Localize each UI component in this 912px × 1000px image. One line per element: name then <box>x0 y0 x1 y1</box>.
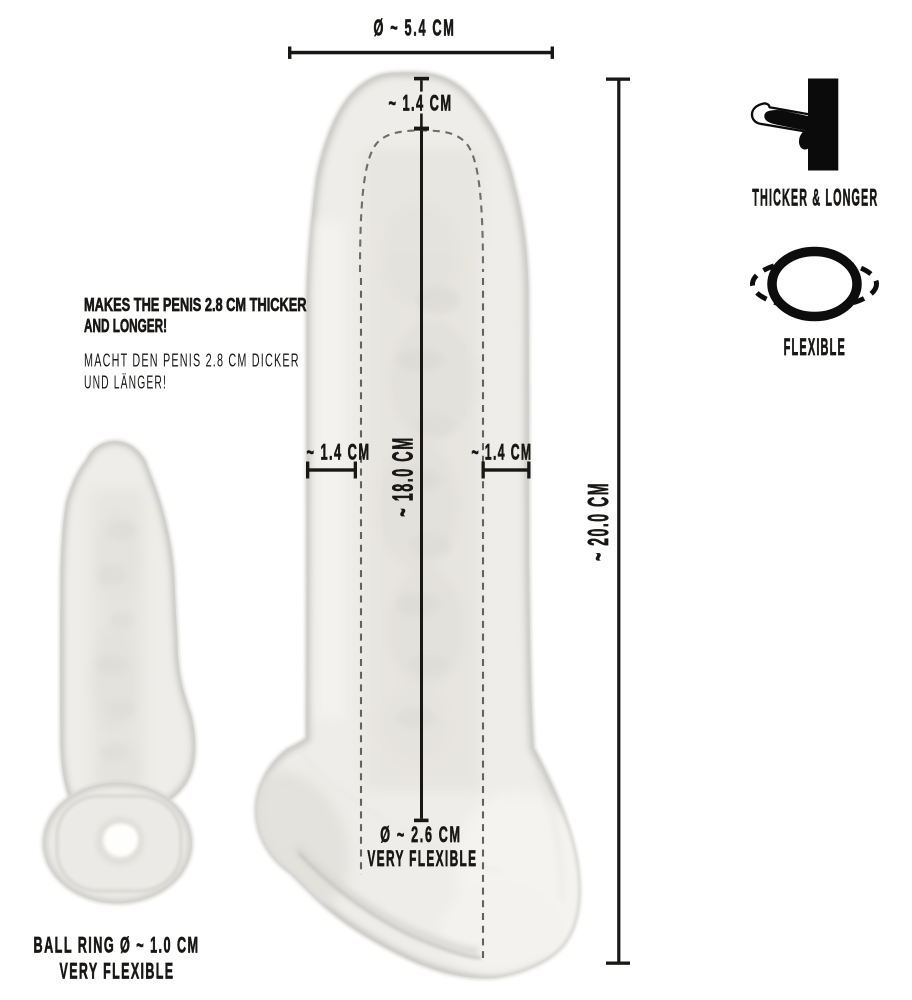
svg-text:MACHT DEN PENIS 2.8 CM DICKER: MACHT DEN PENIS 2.8 CM DICKER <box>84 350 300 370</box>
svg-text:~ 1.4 CM: ~ 1.4 CM <box>389 91 453 116</box>
svg-text:~ 20.0 CM: ~ 20.0 CM <box>583 482 615 561</box>
svg-text:Ø ~ 5.4 CM: Ø ~ 5.4 CM <box>374 15 456 41</box>
svg-text:VERY FLEXIBLE: VERY FLEXIBLE <box>60 959 175 984</box>
svg-text:MAKES THE PENIS 2.8 CM THICKER: MAKES THE PENIS 2.8 CM THICKER <box>84 295 307 315</box>
svg-text:Ø ~ 2.6 CM: Ø ~ 2.6 CM <box>380 822 461 847</box>
svg-text:~ 1.4 CM: ~ 1.4 CM <box>472 440 533 465</box>
svg-text:THICKER & LONGER: THICKER & LONGER <box>752 185 878 212</box>
svg-text:FLEXIBLE: FLEXIBLE <box>784 335 846 361</box>
svg-text:AND LONGER!: AND LONGER! <box>84 316 167 336</box>
svg-text:UND LÄNGER!: UND LÄNGER! <box>84 373 167 393</box>
svg-text:VERY FLEXIBLE: VERY FLEXIBLE <box>367 846 477 871</box>
svg-text:~ 1.4 CM: ~ 1.4 CM <box>307 440 371 465</box>
svg-text:~ 18.0 CM: ~ 18.0 CM <box>388 436 420 517</box>
svg-text:BALL RING Ø ~ 1.0 CM: BALL RING Ø ~ 1.0 CM <box>34 933 200 958</box>
